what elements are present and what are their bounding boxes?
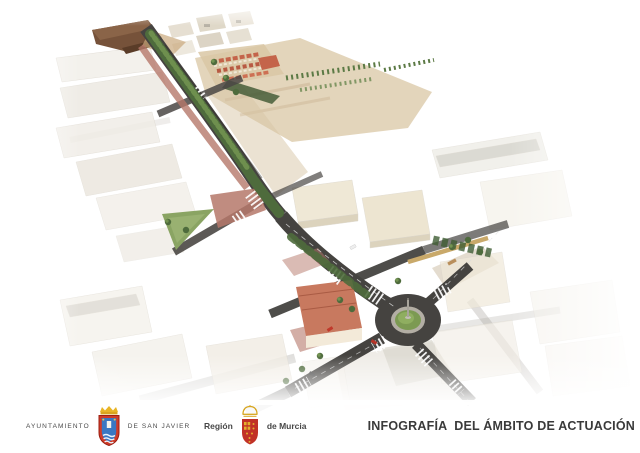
aerial-render [0,0,640,453]
infographic-page: AYUNTAMIENTO DE SAN JAVIER Región [0,0,640,453]
